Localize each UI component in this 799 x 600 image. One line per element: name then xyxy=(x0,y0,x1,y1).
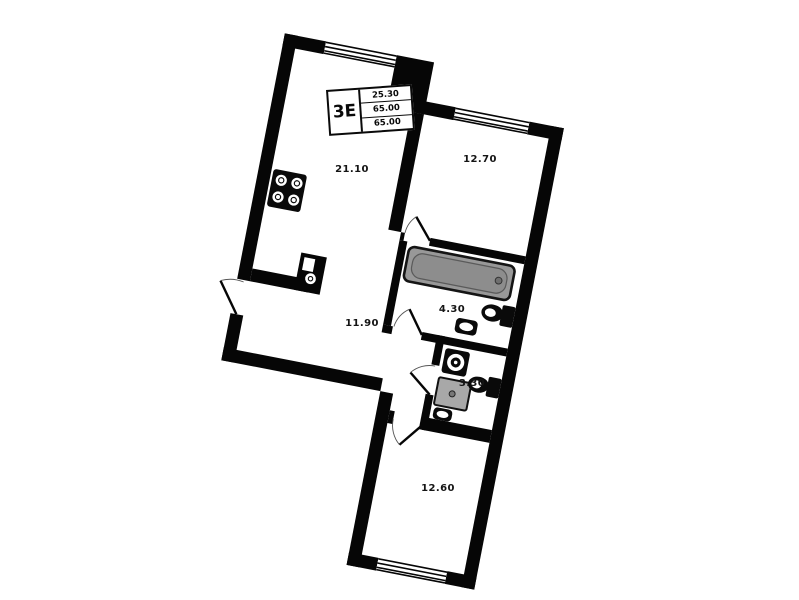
title-block-values: 25.30 65.00 65.00 xyxy=(360,86,413,131)
window-bedroom-top-icon xyxy=(453,107,529,134)
bedroom-bottom-door-swing-icon xyxy=(389,419,423,448)
title-block: 3Е 25.30 65.00 65.00 xyxy=(326,84,415,136)
bathroom-door-swing-icon xyxy=(393,307,426,335)
room-area-label-bedroom-top: 12.70 xyxy=(463,154,497,165)
window-living-icon xyxy=(324,41,397,67)
room-area-label-bathroom: 4.30 xyxy=(439,304,465,315)
room-area-label-wc: 3.30 xyxy=(459,378,485,389)
room-area-label-bedroom-bottom: 12.60 xyxy=(421,483,455,494)
wc-door-swing-icon xyxy=(407,362,435,395)
room-area-label-living: 21.10 xyxy=(335,164,369,175)
bathroom-sink-icon xyxy=(454,317,478,336)
entry-door-swing-icon xyxy=(215,277,244,314)
title-block-total-area-2: 65.00 xyxy=(362,115,413,132)
bathroom-toilet-icon xyxy=(479,301,515,328)
washing-machine-icon xyxy=(441,348,470,377)
apartment-type-label: 3Е xyxy=(328,90,363,134)
window-bedroom-bottom-icon xyxy=(376,558,447,584)
room-area-label-hallway: 11.90 xyxy=(345,318,379,329)
bedroom-top-door-swing-icon xyxy=(404,215,434,241)
stove-icon xyxy=(267,169,308,213)
floor-plan-page: 21.10 12.70 4.30 11.90 3.30 12.60 3Е 25.… xyxy=(0,0,799,600)
